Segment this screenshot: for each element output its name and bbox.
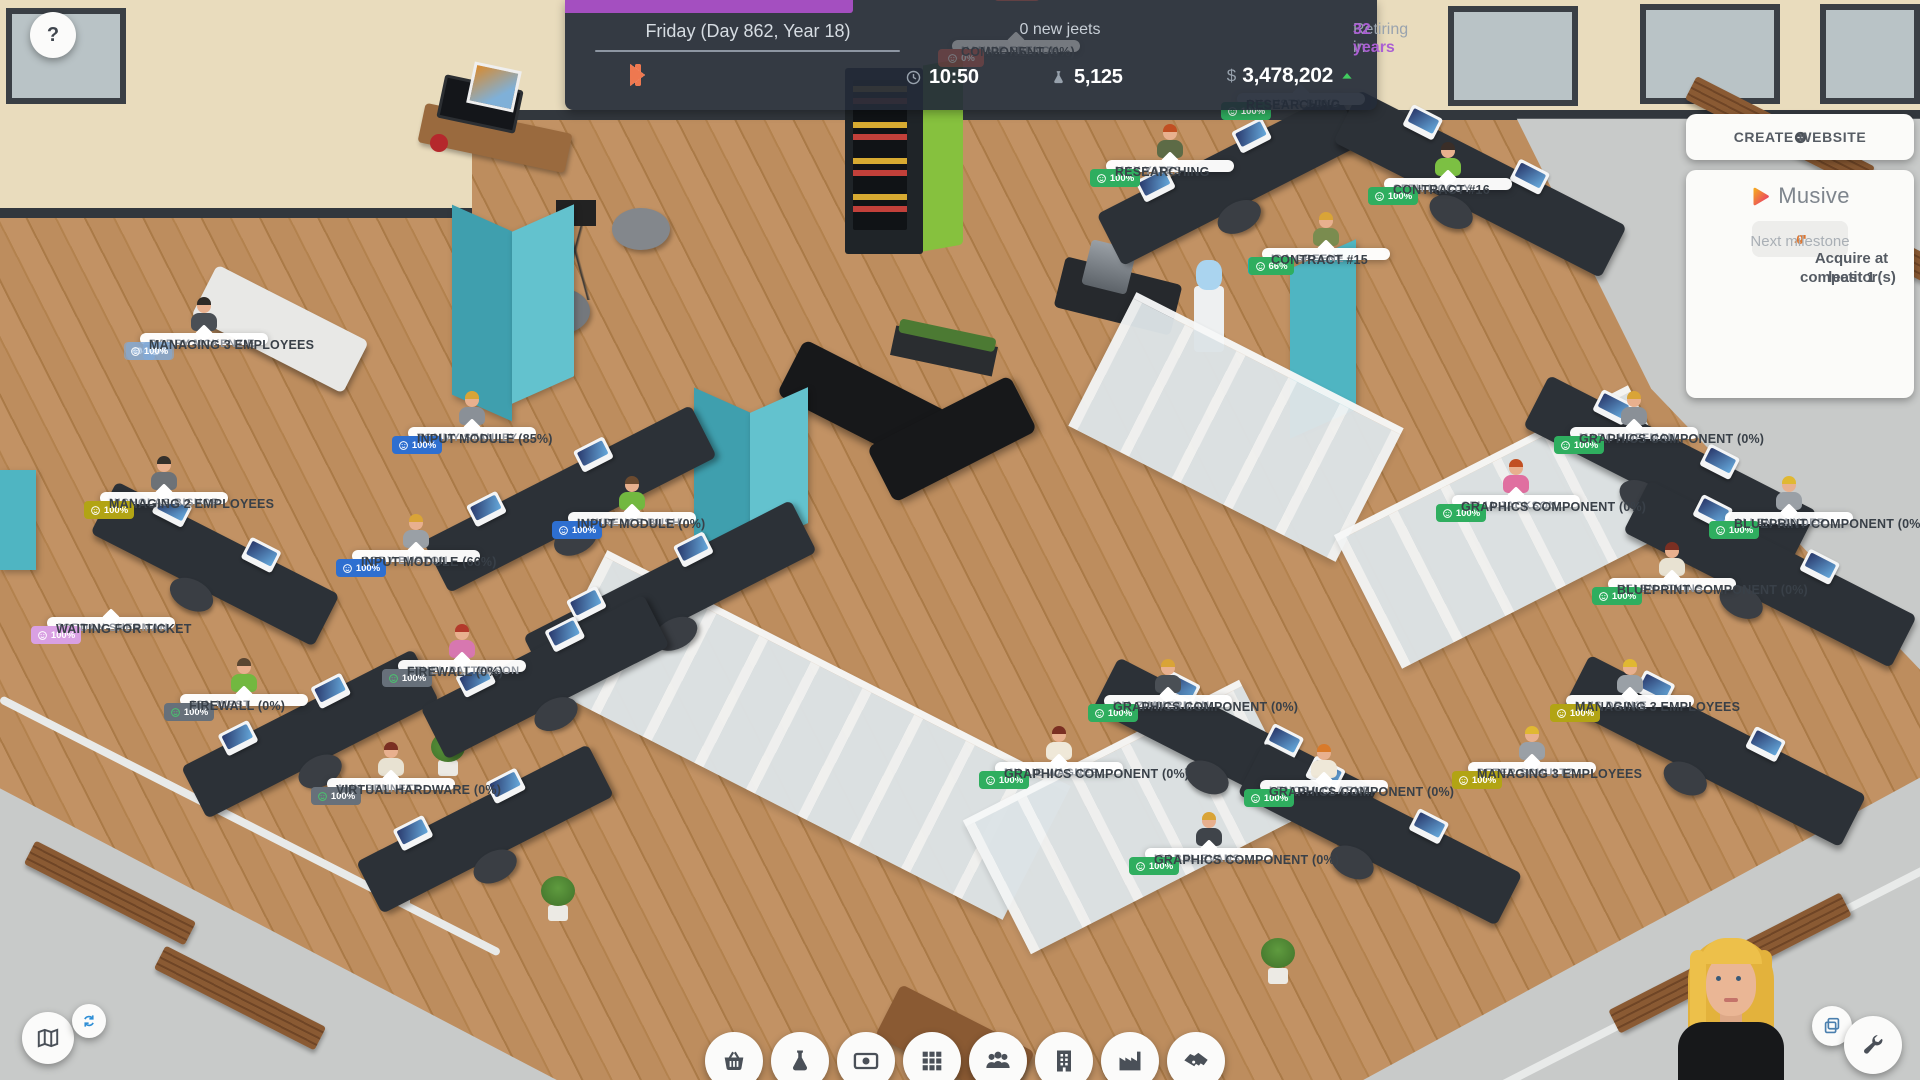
help-label: ? [47, 24, 59, 47]
employee-tag[interactable]: TOMMY STANLEY471/473100%INPUT MODULE (85… [408, 427, 536, 439]
employee-tag[interactable]: ALLEN SNYDER483/482100%BLUEPRINT COMPONE… [1725, 512, 1853, 524]
employee-status: MANAGING 3 EMPLOYEES [1477, 767, 1642, 781]
left-wall [0, 110, 472, 218]
game-date: Friday (Day 862, Year 18) [583, 21, 913, 42]
employee-status: MANAGING 3 EMPLOYEES [1575, 700, 1740, 714]
employee-status: GRAPHICS COMPONENT (0%) [1113, 700, 1298, 714]
employee-status: GRAPHICS COMPONENT (0%) [1269, 785, 1454, 799]
rotate-camera-button[interactable] [72, 1004, 106, 1038]
divider-panel [452, 205, 512, 422]
player-avatar[interactable] [1660, 936, 1810, 1080]
divider-panel [0, 470, 36, 570]
employee-tag[interactable]: NICHOLAS BISHOP338/338100%MANAGING 2 EMP… [100, 492, 228, 504]
day-progress-bar [565, 0, 853, 13]
employee-tag[interactable]: SETH MCCOY126/196100%CONTRACT #16 [1384, 178, 1512, 190]
employee-tag[interactable]: HELEN ATKINS458/457100%BLUEPRINT COMPONE… [1608, 578, 1736, 590]
employee-status: CONTRACT #15 [1271, 253, 1368, 267]
research-button[interactable] [771, 1032, 829, 1080]
employee-status: VIRTUAL HARDWARE (0%) [336, 783, 501, 797]
employee-tag[interactable]: NANNIE FRENCH317/3000%COMPONENT (0%) [952, 40, 1080, 52]
flask-icon [786, 1047, 814, 1075]
employee-status: RESEARCHING [1115, 165, 1210, 179]
company-name: Musive [1778, 183, 1850, 209]
employee-tag[interactable]: CODY BURTON336/336100%INPUT MODULE (66%) [352, 550, 480, 562]
basket-icon [720, 1047, 748, 1075]
mood-badge: 0% [997, 0, 1037, 1]
company-panel: Musive #44100%0%70%0 Next milestone Acqu… [1686, 170, 1914, 398]
employee-tag[interactable]: BARRY MCKENZIE404/404100%MANAGING 3 EMPL… [140, 333, 268, 345]
employee-tag[interactable]: MAX YATES471/471100%RESEARCHING [1106, 160, 1234, 172]
employee-status: GRAPHICS COMPONENT (0%) [1004, 767, 1189, 781]
offices-button[interactable] [1035, 1032, 1093, 1080]
employee-status: MANAGING 3 EMPLOYEES [149, 338, 314, 352]
research-icon [1050, 69, 1067, 86]
divider-panel [512, 204, 574, 404]
employee-status: INPUT MODULE (0%) [577, 517, 705, 531]
beanbag [612, 208, 670, 250]
employee-status: INPUT MODULE (85%) [417, 432, 553, 446]
rotate-icon [80, 1012, 98, 1030]
staff-button[interactable] [969, 1032, 1027, 1080]
employee-tag[interactable]: LUIS DRAKE347/346100%MANAGING 3 EMPLOYEE… [1566, 695, 1694, 707]
shop-button[interactable] [705, 1032, 763, 1080]
factory-icon [1116, 1047, 1144, 1075]
map-icon [35, 1025, 61, 1051]
money-amount: 3,478,202 [1242, 64, 1333, 88]
employee-tag[interactable]: JON WEST465/464100%FIREWALL (0%) [180, 694, 308, 706]
money-display: $ 3,478,202 [1227, 64, 1355, 88]
bottom-toolbar [705, 1032, 1225, 1080]
money-icon [852, 1047, 880, 1075]
plant [541, 876, 575, 906]
create-website-button[interactable]: CREATE WEBSITE [1686, 114, 1914, 160]
settings-button[interactable] [1844, 1016, 1902, 1074]
employee-status: CONTRACT #16 [1393, 183, 1490, 197]
products-button[interactable] [903, 1032, 961, 1080]
people-icon [984, 1047, 1012, 1075]
employee-tag[interactable]: ETHEL PATTERSON481/481100%FIREWALL (0%) [398, 660, 526, 672]
employee-status: GRAPHICS COMPONENT (0%) [1579, 432, 1764, 446]
research-points: 5,125 [1074, 66, 1123, 89]
clock-icon [905, 69, 922, 86]
employee-status: FIREWALL (0%) [189, 699, 285, 713]
employee-tag[interactable]: LAWRENCE BUSH328/454100%INPUT MODULE (0%… [568, 512, 696, 524]
currency-symbol: $ [1227, 66, 1236, 86]
copy-icon [1821, 1015, 1843, 1037]
employee-status: FIREWALL (0%) [407, 665, 503, 679]
help-button[interactable]: ? [30, 12, 76, 58]
milestone-text: Acquire at least 1competitor(s) [1697, 250, 1903, 269]
employee-status: GRAPHICS COMPONENT (0%) [1461, 500, 1646, 514]
map-button[interactable] [22, 1012, 74, 1064]
production-button[interactable] [1101, 1032, 1159, 1080]
create-website-label: CREATE WEBSITE [1734, 129, 1867, 145]
employee-status: WAITING FOR TICKET [56, 622, 192, 636]
employee-tag[interactable]: AMY BENNETT468/467100%VIRTUAL HARDWARE (… [327, 778, 455, 790]
milestone-label: Next milestone [1697, 233, 1903, 250]
deals-button[interactable] [1167, 1032, 1225, 1080]
grid-icon [918, 1047, 946, 1075]
employee-tag[interactable]: CELIA JACKSON467/467100%GRAPHICS COMPONE… [1452, 495, 1580, 507]
employee-tag[interactable]: MARC HOFFMAN457/456100%GRAPHICS COMPONEN… [1570, 427, 1698, 439]
window [1448, 6, 1578, 106]
company-logo-row: Musive [1697, 183, 1903, 209]
employee-tag[interactable]: JORDAN SHERMAN117/300100%WAITING FOR TIC… [47, 617, 175, 629]
window [1820, 4, 1920, 104]
employee-tag[interactable]: LENORA CLARKE452/451100%GRAPHICS COMPONE… [1260, 780, 1388, 792]
employee-tag[interactable]: PETER SCHULTZ470/475100%MANAGING 3 EMPLO… [1468, 762, 1596, 774]
wrench-icon [1860, 1032, 1886, 1058]
game-time: 10:50 [929, 66, 979, 89]
employee-tag[interactable]: MILLIE WAGNER196/196100%GRAPHICS COMPONE… [995, 762, 1123, 774]
employee-tag[interactable]: IDA GREENE201/34566%CONTRACT #15 [1262, 248, 1390, 260]
handshake-icon [1182, 1047, 1210, 1075]
avatar-torso [1678, 1022, 1784, 1080]
employee-status: BLUEPRINT COMPONENT (0%) [1617, 583, 1808, 597]
game-viewport: AUGUSTA BOYD473/477100%RESEARCHINGMAX YA… [0, 0, 1920, 1080]
money-trend-up-icon [1339, 68, 1355, 84]
date-underline [595, 50, 900, 52]
wall-lamp [430, 134, 448, 152]
musive-logo-icon [1750, 186, 1771, 207]
finance-button[interactable] [837, 1032, 895, 1080]
employee-tag[interactable]: INA ZIMMERMAN473/472100%GRAPHICS COMPONE… [1104, 695, 1232, 707]
plant-pot [1268, 968, 1288, 984]
employee-status: INPUT MODULE (66%) [361, 555, 497, 569]
employee-tag[interactable]: ISABEL EVANS340/340100%GRAPHICS COMPONEN… [1145, 848, 1273, 860]
building-icon [1050, 1047, 1078, 1075]
employee-status: MANAGING 2 EMPLOYEES [109, 497, 274, 511]
employee-status: BLUEPRINT COMPONENT (0%) [1734, 517, 1920, 531]
plant-pot [548, 905, 568, 921]
employee-status: COMPONENT (0%) [961, 45, 1075, 59]
plant-pot [438, 760, 458, 776]
plant [1261, 938, 1295, 968]
new-jeets-label: 0 new jeets [945, 21, 1175, 39]
employee-status: GRAPHICS COMPONENT (0%) [1154, 853, 1339, 867]
